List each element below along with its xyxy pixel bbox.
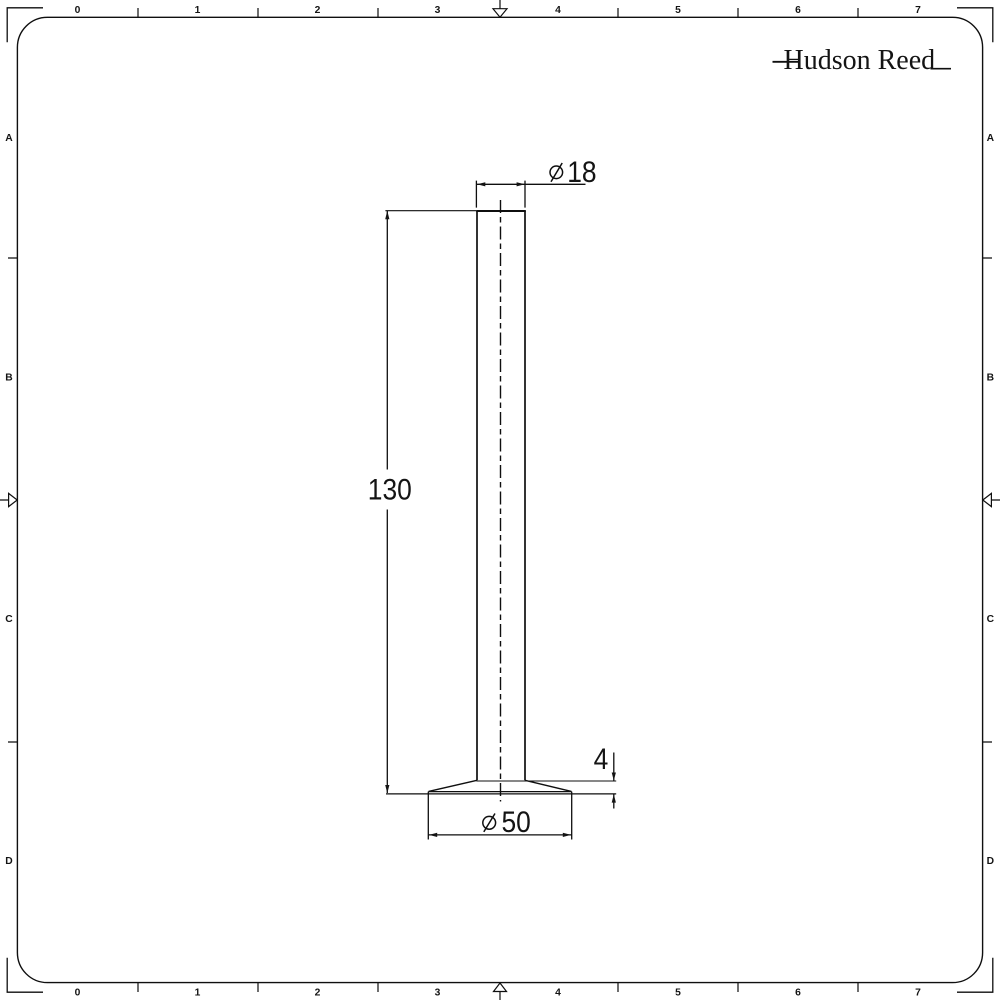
svg-text:C: C: [5, 614, 13, 625]
svg-text:3: 3: [435, 988, 441, 999]
svg-text:C: C: [987, 614, 995, 625]
svg-text:A: A: [5, 133, 13, 144]
svg-text:5: 5: [675, 5, 681, 16]
svg-text:1: 1: [195, 988, 201, 999]
svg-text:A: A: [987, 133, 995, 144]
svg-text:4: 4: [555, 988, 561, 999]
svg-text:4: 4: [594, 741, 609, 775]
svg-text:6: 6: [795, 5, 801, 16]
svg-text:B: B: [5, 373, 12, 384]
svg-text:6: 6: [795, 988, 801, 999]
svg-text:3: 3: [435, 5, 441, 16]
svg-text:D: D: [5, 856, 12, 867]
svg-text:7: 7: [915, 988, 921, 999]
svg-text:D: D: [987, 856, 994, 867]
svg-text:7: 7: [915, 5, 921, 16]
svg-text:2: 2: [315, 988, 321, 999]
svg-text:18: 18: [567, 154, 596, 188]
svg-text:4: 4: [555, 5, 561, 16]
svg-text:0: 0: [75, 988, 81, 999]
svg-text:2: 2: [315, 5, 321, 16]
svg-text:0: 0: [75, 5, 81, 16]
svg-text:1: 1: [195, 5, 201, 16]
svg-text:130: 130: [368, 472, 412, 506]
svg-text:Hudson Reed: Hudson Reed: [784, 45, 936, 76]
svg-text:B: B: [987, 373, 994, 384]
svg-text:50: 50: [502, 804, 531, 838]
svg-text:5: 5: [675, 988, 681, 999]
